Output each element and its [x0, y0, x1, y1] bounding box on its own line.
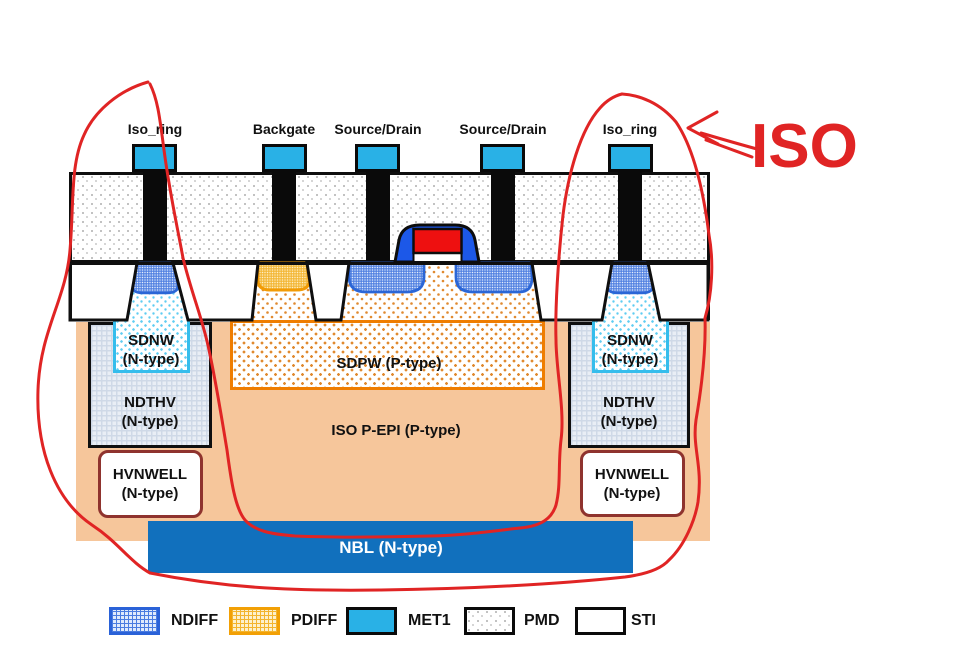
terminal-label-iso-ring-left: Iso_ring [128, 121, 182, 137]
sdnw-funnel-right [602, 263, 660, 320]
iso-arrow-head [688, 112, 718, 144]
surface-band [69, 262, 710, 320]
terminal-label-backgate: Backgate [253, 121, 315, 137]
legend-swatch-met1 [346, 607, 397, 635]
legend-swatch-pdiff [229, 607, 280, 635]
ndiff-bulb-source-drain-1 [349, 263, 424, 292]
ndthv-label-right: NDTHV (N-type) [601, 393, 658, 431]
contact-source-drain-2 [491, 171, 515, 264]
sdnw-type: (N-type) [123, 350, 180, 369]
legend-swatch-ndiff [109, 607, 160, 635]
met1-pad-source-drain-1 [355, 144, 400, 172]
ndthv-name: NDTHV [601, 393, 658, 412]
sti-region-4 [532, 263, 612, 320]
legend-label-ndiff: NDIFF [171, 607, 218, 635]
terminal-label-source-drain-2: Source/Drain [459, 121, 546, 137]
terminal-label-source-drain-1: Source/Drain [334, 121, 421, 137]
legend-label-sti: STI [631, 607, 656, 635]
pdiff-bulb-backgate [258, 263, 309, 290]
legend-label-pmd: PMD [524, 607, 560, 635]
ndthv-label-left: NDTHV (N-type) [122, 393, 179, 431]
hvnwell-name: HVNWELL [595, 465, 669, 484]
ndthv-type: (N-type) [601, 412, 658, 431]
iso-arrow-shaft [701, 133, 757, 157]
hvnwell-label-right: HVNWELL (N-type) [595, 465, 669, 503]
met1-pad-backgate [262, 144, 307, 172]
sdpw-funnel-active [341, 263, 541, 320]
contact-iso-ring-right [618, 171, 642, 264]
sti-region-5 [648, 263, 708, 320]
legend-label-pdiff: PDIFF [291, 607, 337, 635]
sdnw-name: SDNW [602, 331, 659, 350]
legend-swatch-sti [575, 607, 626, 635]
contact-iso-ring-left [143, 171, 167, 264]
sdnw-name: SDNW [123, 331, 180, 350]
sdnw-funnel-left [127, 263, 188, 320]
ndiff-bulb-iso-right [607, 263, 653, 293]
silicon-surface [69, 262, 710, 320]
sti-region-3 [307, 263, 349, 320]
nbl-label: NBL (N-type) [339, 538, 443, 558]
hvnwell-name: HVNWELL [113, 465, 187, 484]
hvnwell-label-left: HVNWELL (N-type) [113, 465, 187, 503]
sdnw-type: (N-type) [602, 350, 659, 369]
met1-pad-source-drain-2 [480, 144, 525, 172]
legend-swatch-pmd [464, 607, 515, 635]
sdpw-funnel-backgate [252, 263, 316, 320]
hvnwell-type: (N-type) [595, 484, 669, 503]
sdnw-label-right: SDNW (N-type) [602, 331, 659, 369]
ndiff-bulb-iso-left [132, 263, 178, 293]
ndthv-type: (N-type) [122, 412, 179, 431]
terminal-label-iso-ring-right: Iso_ring [603, 121, 657, 137]
sti-region-2 [173, 263, 258, 320]
sti-region-1 [70, 263, 137, 320]
ndiff-bulb-source-drain-2 [456, 263, 532, 292]
sdnw-label-left: SDNW (N-type) [123, 331, 180, 369]
legend-label-met1: MET1 [408, 607, 451, 635]
surface-side-lines [71, 262, 709, 320]
contact-backgate [272, 171, 296, 264]
epi-label: ISO P-EPI (P-type) [331, 422, 460, 439]
iso-annotation-text: ISO [751, 116, 858, 178]
contact-source-drain-1 [366, 171, 390, 264]
met1-pad-iso-ring-right [608, 144, 653, 172]
hvnwell-type: (N-type) [113, 484, 187, 503]
ndthv-name: NDTHV [122, 393, 179, 412]
met1-pad-iso-ring-left [132, 144, 177, 172]
diagram-canvas: Iso_ring Backgate Source/Drain Source/Dr… [0, 0, 955, 661]
sdpw-label: SDPW (P-type) [337, 355, 442, 372]
